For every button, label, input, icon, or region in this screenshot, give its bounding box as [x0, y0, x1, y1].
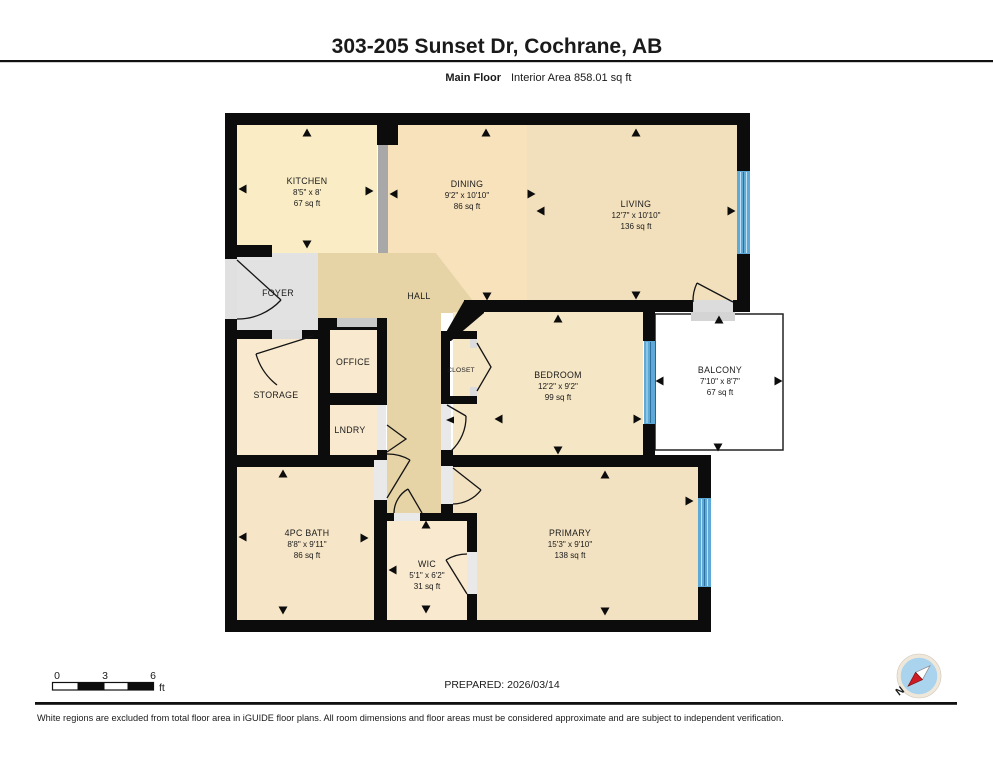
footer: PREPARED: 2026/03/14 N White regions are… — [35, 654, 957, 723]
scale-unit: ft — [159, 682, 165, 694]
office-label: OFFICE — [336, 357, 370, 367]
bedroom-area: 99 sq ft — [545, 393, 572, 402]
scale-bar-segment — [78, 683, 105, 691]
primary-opening — [441, 466, 453, 504]
wic-label: WIC — [418, 559, 436, 569]
scale-bar: 0 3 6 ft — [53, 670, 165, 694]
storage-opening — [272, 330, 302, 339]
header: 303-205 Sunset Dr, Cochrane, AB Main Flo… — [0, 35, 993, 84]
balcony-area: 67 sq ft — [707, 388, 734, 397]
bedroom-opening — [441, 404, 451, 450]
living-dims: 12'7" x 10'10" — [612, 211, 661, 220]
bath-label: 4PC BATH — [285, 528, 330, 538]
living-label: LIVING — [621, 199, 652, 209]
closet-jamb-bottom — [470, 387, 477, 396]
bath-dims: 8'8" x 9'11" — [287, 540, 326, 549]
kitchen-area: 67 sq ft — [294, 199, 321, 208]
scale-bar-segment — [128, 683, 154, 691]
dining-dims: 9'2" x 10'10" — [445, 191, 490, 200]
bedroom-dims: 12'2" x 9'2" — [538, 382, 578, 391]
floorplan-svg: 303-205 Sunset Dr, Cochrane, AB Main Flo… — [0, 0, 993, 768]
bedroom-window — [644, 341, 655, 424]
interior-area-label: Interior Area 858.01 sq ft — [511, 72, 631, 84]
footer-divider — [35, 702, 957, 705]
wic-opening — [394, 513, 420, 521]
disclaimer-text: White regions are excluded from total fl… — [37, 713, 784, 723]
bath-opening — [374, 460, 387, 500]
living-area: 136 sq ft — [620, 222, 652, 231]
wic-dims: 5'1" x 6'2" — [409, 571, 445, 580]
primary-label: PRIMARY — [549, 528, 591, 538]
dining-label: DINING — [451, 179, 484, 189]
living-window — [737, 171, 750, 254]
kitchen-dims: 8'5" x 8' — [293, 188, 321, 197]
scale-tick-6: 6 — [150, 670, 156, 682]
balcony-label: BALCONY — [698, 365, 742, 375]
scale-tick-3: 3 — [102, 670, 108, 682]
bath-area: 86 sq ft — [294, 551, 321, 560]
balcony-door-opening — [693, 300, 733, 312]
scale-tick-0: 0 — [54, 670, 60, 682]
floor-label: Main Floor — [445, 72, 501, 84]
balcony-step — [691, 312, 735, 321]
primary-dims: 15'3" x 9'10" — [548, 540, 593, 549]
laundry-opening — [377, 405, 386, 450]
balcony-dims: 7'10" x 8'7" — [700, 377, 740, 386]
kitchen-half-wall — [378, 145, 388, 253]
floorplan-page: 303-205 Sunset Dr, Cochrane, AB Main Flo… — [0, 0, 993, 768]
kitchen-label: KITCHEN — [287, 176, 328, 186]
foyer-label: FOYER — [262, 288, 294, 298]
wic-area: 31 sq ft — [414, 582, 441, 591]
laundry-label: LNDRY — [334, 425, 365, 435]
closet-jamb-top — [470, 339, 477, 348]
prepared-date: PREPARED: 2026/03/14 — [444, 679, 560, 691]
primary-window — [698, 498, 711, 587]
office-window-strip — [337, 318, 377, 327]
hall-label: HALL — [407, 291, 430, 301]
wic-side-opening — [467, 552, 477, 594]
closet-label: CLOSET — [447, 367, 475, 374]
dining-area: 86 sq ft — [454, 202, 481, 211]
bedroom-label: BEDROOM — [534, 370, 582, 380]
primary-area: 138 sq ft — [554, 551, 586, 560]
entry-opening — [225, 259, 237, 319]
storage-label: STORAGE — [254, 390, 299, 400]
compass-icon: N — [893, 654, 940, 698]
header-divider — [0, 60, 993, 62]
page-title: 303-205 Sunset Dr, Cochrane, AB — [332, 35, 663, 58]
